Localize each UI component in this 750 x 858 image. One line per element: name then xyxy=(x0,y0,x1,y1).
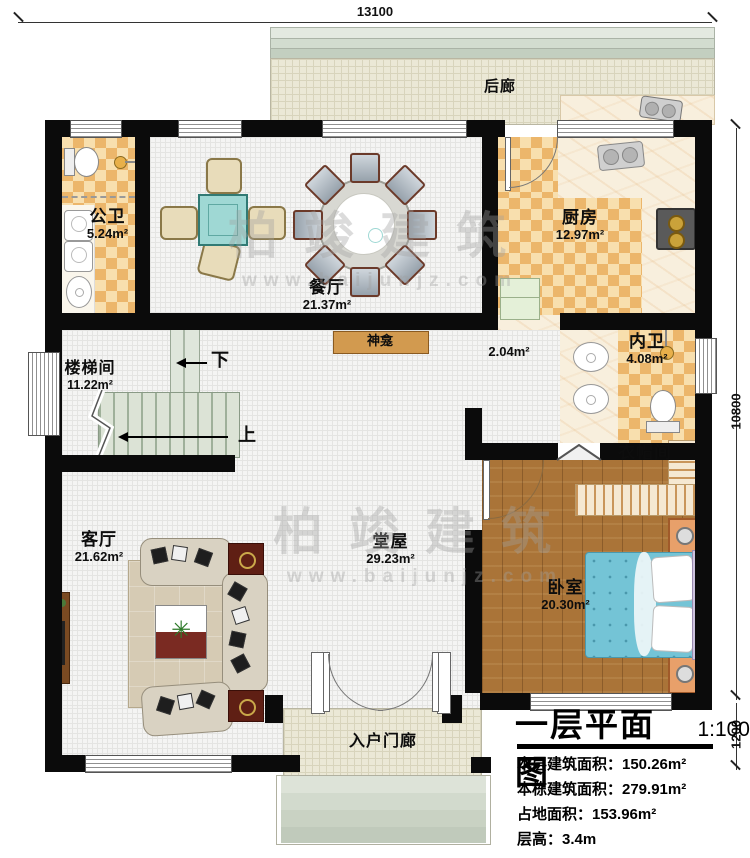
side-table xyxy=(228,543,264,575)
wall-segment xyxy=(45,313,482,330)
room-name: 客厅 xyxy=(60,530,138,550)
stair-up-label: 上 xyxy=(232,425,262,446)
room-name: 堂屋 xyxy=(348,532,433,552)
wall-segment xyxy=(240,120,322,137)
sofa-pillow xyxy=(151,547,169,565)
window xyxy=(85,755,232,773)
window xyxy=(178,120,242,138)
room-name: 餐厅 xyxy=(292,278,362,298)
room-area: 21.37m² xyxy=(292,298,362,313)
wall-segment xyxy=(465,120,505,137)
stair-break-line xyxy=(88,390,114,458)
room-area: 4.08m² xyxy=(602,352,692,367)
dimension-right-main: 10800 xyxy=(729,382,744,442)
wall-segment xyxy=(695,120,712,710)
titleblock-underline xyxy=(517,744,713,749)
room-name: 楼梯间 xyxy=(40,360,140,378)
sofa-pillow xyxy=(171,545,188,562)
stair-arrow-line xyxy=(185,362,207,364)
toilet-icon xyxy=(74,147,99,177)
wardrobe-rack xyxy=(575,484,697,516)
room-area: 20.30m² xyxy=(523,598,608,613)
dining-chair xyxy=(206,158,242,194)
sink-icon xyxy=(573,384,609,414)
wall-segment xyxy=(465,408,482,460)
dining-chair xyxy=(350,153,380,183)
room-name: 后廊 xyxy=(465,78,535,95)
wall-segment xyxy=(45,755,85,772)
room-area: 11.22m² xyxy=(40,378,140,392)
room-name: 衣帽间 xyxy=(595,443,695,463)
sofa xyxy=(140,681,233,737)
dining-chair xyxy=(248,206,286,240)
wall-segment xyxy=(471,757,491,773)
room-name: 厨房 xyxy=(535,208,625,228)
titleblock-info: 本层建筑面积：150.26m² 本栋建筑面积：279.91m² 占地面积：153… xyxy=(517,752,686,852)
door-leaf xyxy=(432,652,439,712)
dimension-tick xyxy=(707,12,718,23)
wall-segment xyxy=(120,120,178,137)
room-name: 内卫 xyxy=(602,332,692,352)
plan-scale: 1:100 xyxy=(697,718,750,742)
room-area: 2.04m² xyxy=(478,345,540,360)
room-label-cloakroom: 衣帽间 xyxy=(595,443,695,463)
room-area: 5.24m² xyxy=(75,227,140,242)
stair-arrow-line xyxy=(128,436,228,438)
room-label-kitchen: 厨房 12.97m² xyxy=(535,208,625,242)
room-label-dining: 餐厅 21.37m² xyxy=(292,278,362,312)
wall-segment xyxy=(465,530,482,693)
fridge-icon xyxy=(500,278,540,320)
room-area: 21.62m² xyxy=(60,550,138,565)
info-line: 占地面积：153.96m² xyxy=(517,802,686,827)
plant-icon: ✳ xyxy=(168,618,194,644)
room-label-porch-entry: 入户门廊 xyxy=(328,733,438,751)
room-label-stairwell: 楼梯间 11.22m² xyxy=(40,360,140,393)
room-label-hall: 堂屋 29.23m² xyxy=(348,532,433,566)
square-table xyxy=(198,194,248,246)
wall-segment xyxy=(265,695,283,723)
wall-segment xyxy=(230,755,300,772)
sofa-pillow xyxy=(177,693,194,710)
sink-icon xyxy=(597,141,645,172)
sofa-pillow xyxy=(229,631,247,649)
room-label-bedroom: 卧室 20.30m² xyxy=(523,578,608,612)
toilet-icon xyxy=(646,421,680,433)
room-area: 29.23m² xyxy=(348,552,433,567)
stair-main-flight xyxy=(98,392,240,458)
room-label-shrine: 神龛 xyxy=(333,334,427,349)
arrow-down-icon xyxy=(176,358,186,368)
floor-plan: 13100 10800 1200 后廊 xyxy=(0,0,750,858)
info-line: 本栋建筑面积：279.91m² xyxy=(517,777,686,802)
pillow xyxy=(651,605,695,653)
wall-segment xyxy=(560,313,712,330)
door-frame xyxy=(437,652,451,714)
pillow xyxy=(650,555,695,604)
entry-steps xyxy=(276,775,491,845)
arrow-up-icon xyxy=(118,432,128,442)
dimension-tick xyxy=(13,12,24,23)
info-line: 本层建筑面积：150.26m² xyxy=(517,752,686,777)
wall-segment xyxy=(482,443,558,460)
window xyxy=(557,120,674,138)
wall-segment xyxy=(482,137,498,330)
wall-segment xyxy=(45,455,235,472)
dimension-top-width: 13100 xyxy=(345,4,405,19)
dining-chair xyxy=(160,206,198,240)
washer-icon xyxy=(64,241,93,272)
sink-icon xyxy=(66,276,92,308)
window-bay xyxy=(695,338,717,394)
toilet-icon xyxy=(650,390,676,423)
room-name: 神龛 xyxy=(333,334,427,349)
info-line: 层高：3.4m xyxy=(517,827,686,852)
dining-chair xyxy=(407,210,437,240)
wall-segment xyxy=(45,120,62,772)
room-label-porch-back: 后廊 xyxy=(465,78,535,95)
window xyxy=(70,120,122,138)
dimension-line-top xyxy=(18,22,712,23)
coffee-table: ✳ xyxy=(155,605,207,659)
shower-divider xyxy=(62,196,135,198)
room-name: 入户门廊 xyxy=(328,733,438,751)
room-name: 公卫 xyxy=(75,207,140,227)
window xyxy=(322,120,467,138)
room-area: 12.97m² xyxy=(535,228,625,243)
stair-down-label: 下 xyxy=(205,350,235,371)
room-label-living: 客厅 21.62m² xyxy=(60,530,138,564)
side-table xyxy=(228,690,264,722)
stove-icon xyxy=(656,208,696,250)
room-label-public-bath: 公卫 5.24m² xyxy=(75,207,140,241)
room-name: 卧室 xyxy=(523,578,608,598)
room-label-corridor: 2.04m² xyxy=(478,345,540,360)
dining-chair xyxy=(293,210,323,240)
room-label-inner-bath: 内卫 4.08m² xyxy=(602,332,692,366)
